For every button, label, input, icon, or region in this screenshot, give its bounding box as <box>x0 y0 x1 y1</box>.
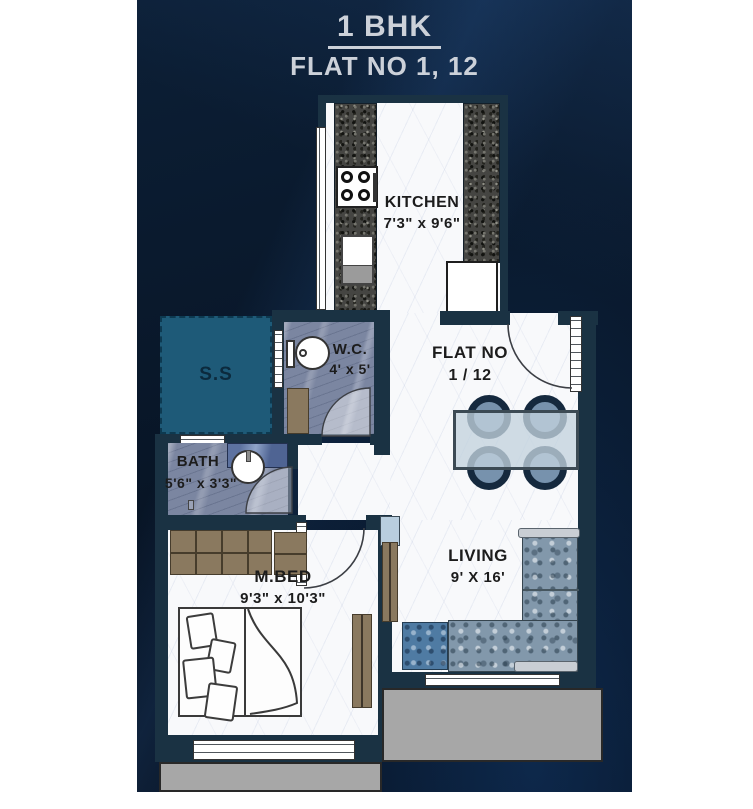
toilet-flush-icon <box>299 349 307 357</box>
tv-unit <box>382 542 398 622</box>
wc-cabinet <box>287 388 309 434</box>
plan-title-block: 1 BHK FLAT NO 1, 12 <box>137 10 632 81</box>
bath-dims: 5'6" x 3'3" <box>158 474 244 493</box>
dining-table <box>453 410 579 470</box>
living-window <box>425 674 560 686</box>
living-name: LIVING <box>430 545 526 568</box>
sofa-seam <box>523 589 579 591</box>
bedroom-dresser <box>352 614 372 708</box>
living-label: LIVING 9' X 16' <box>430 545 526 588</box>
ss-label: S.S <box>199 364 233 386</box>
kitchen-label: KITCHEN 7'3" x 9'6" <box>376 192 468 234</box>
fridge-icon <box>446 261 498 315</box>
wall <box>155 515 306 530</box>
mbed-name: M.BED <box>218 566 348 589</box>
pillow <box>204 682 239 722</box>
faucet-icon <box>246 450 251 462</box>
wall <box>272 310 378 322</box>
stove-burner-icon <box>358 171 370 183</box>
plan-title: 1 BHK <box>328 10 441 49</box>
wc-dims: 4' x 5' <box>322 360 378 379</box>
floor-plan: 1 BHK FLAT NO 1, 12 KITCHEN 7'3" x 9'6" … <box>0 0 753 809</box>
wall <box>288 443 298 469</box>
wall <box>370 434 390 445</box>
sink-drainboard <box>343 265 372 283</box>
flat-no-name: FLAT NO <box>428 342 512 365</box>
toilet-cistern-icon <box>286 340 295 368</box>
wc-label: W.C. 4' x 5' <box>322 340 378 379</box>
living-dims: 9' X 16' <box>430 568 526 588</box>
sofa-armrest <box>514 661 578 672</box>
ss-shaft: S.S <box>160 316 272 434</box>
sofa-armrest <box>518 528 580 538</box>
plan-subtitle: FLAT NO 1, 12 <box>137 52 632 82</box>
wc-window <box>274 330 283 388</box>
living-balcony <box>382 688 603 762</box>
floor-drain-icon <box>188 500 194 510</box>
ottoman <box>402 622 448 670</box>
mbed-window <box>193 740 355 760</box>
stove-burner-icon <box>341 189 353 201</box>
bedroom-chajja <box>159 762 382 792</box>
wc-name: W.C. <box>322 340 378 360</box>
bed-divider <box>244 609 246 715</box>
stove-burner-icon <box>358 189 370 201</box>
stove-burner-icon <box>341 171 353 183</box>
kitchen-name: KITCHEN <box>376 192 468 214</box>
entrance-door-leaf <box>570 316 582 392</box>
kitchen-counter-right <box>463 103 500 263</box>
kitchen-sink-icon <box>341 235 374 285</box>
wall <box>440 311 510 325</box>
kitchen-dims: 7'3" x 9'6" <box>376 214 468 234</box>
kitchen-window <box>316 127 326 310</box>
bath-dims-label: 5'6" x 3'3" <box>158 474 244 493</box>
flat-no-label: FLAT NO 1 / 12 <box>428 342 512 387</box>
bath-label: BATH <box>162 452 234 472</box>
flat-no-value: 1 / 12 <box>428 365 512 387</box>
mbed-label: M.BED 9'3" x 10'3" <box>218 566 348 609</box>
bath-name: BATH <box>162 452 234 472</box>
